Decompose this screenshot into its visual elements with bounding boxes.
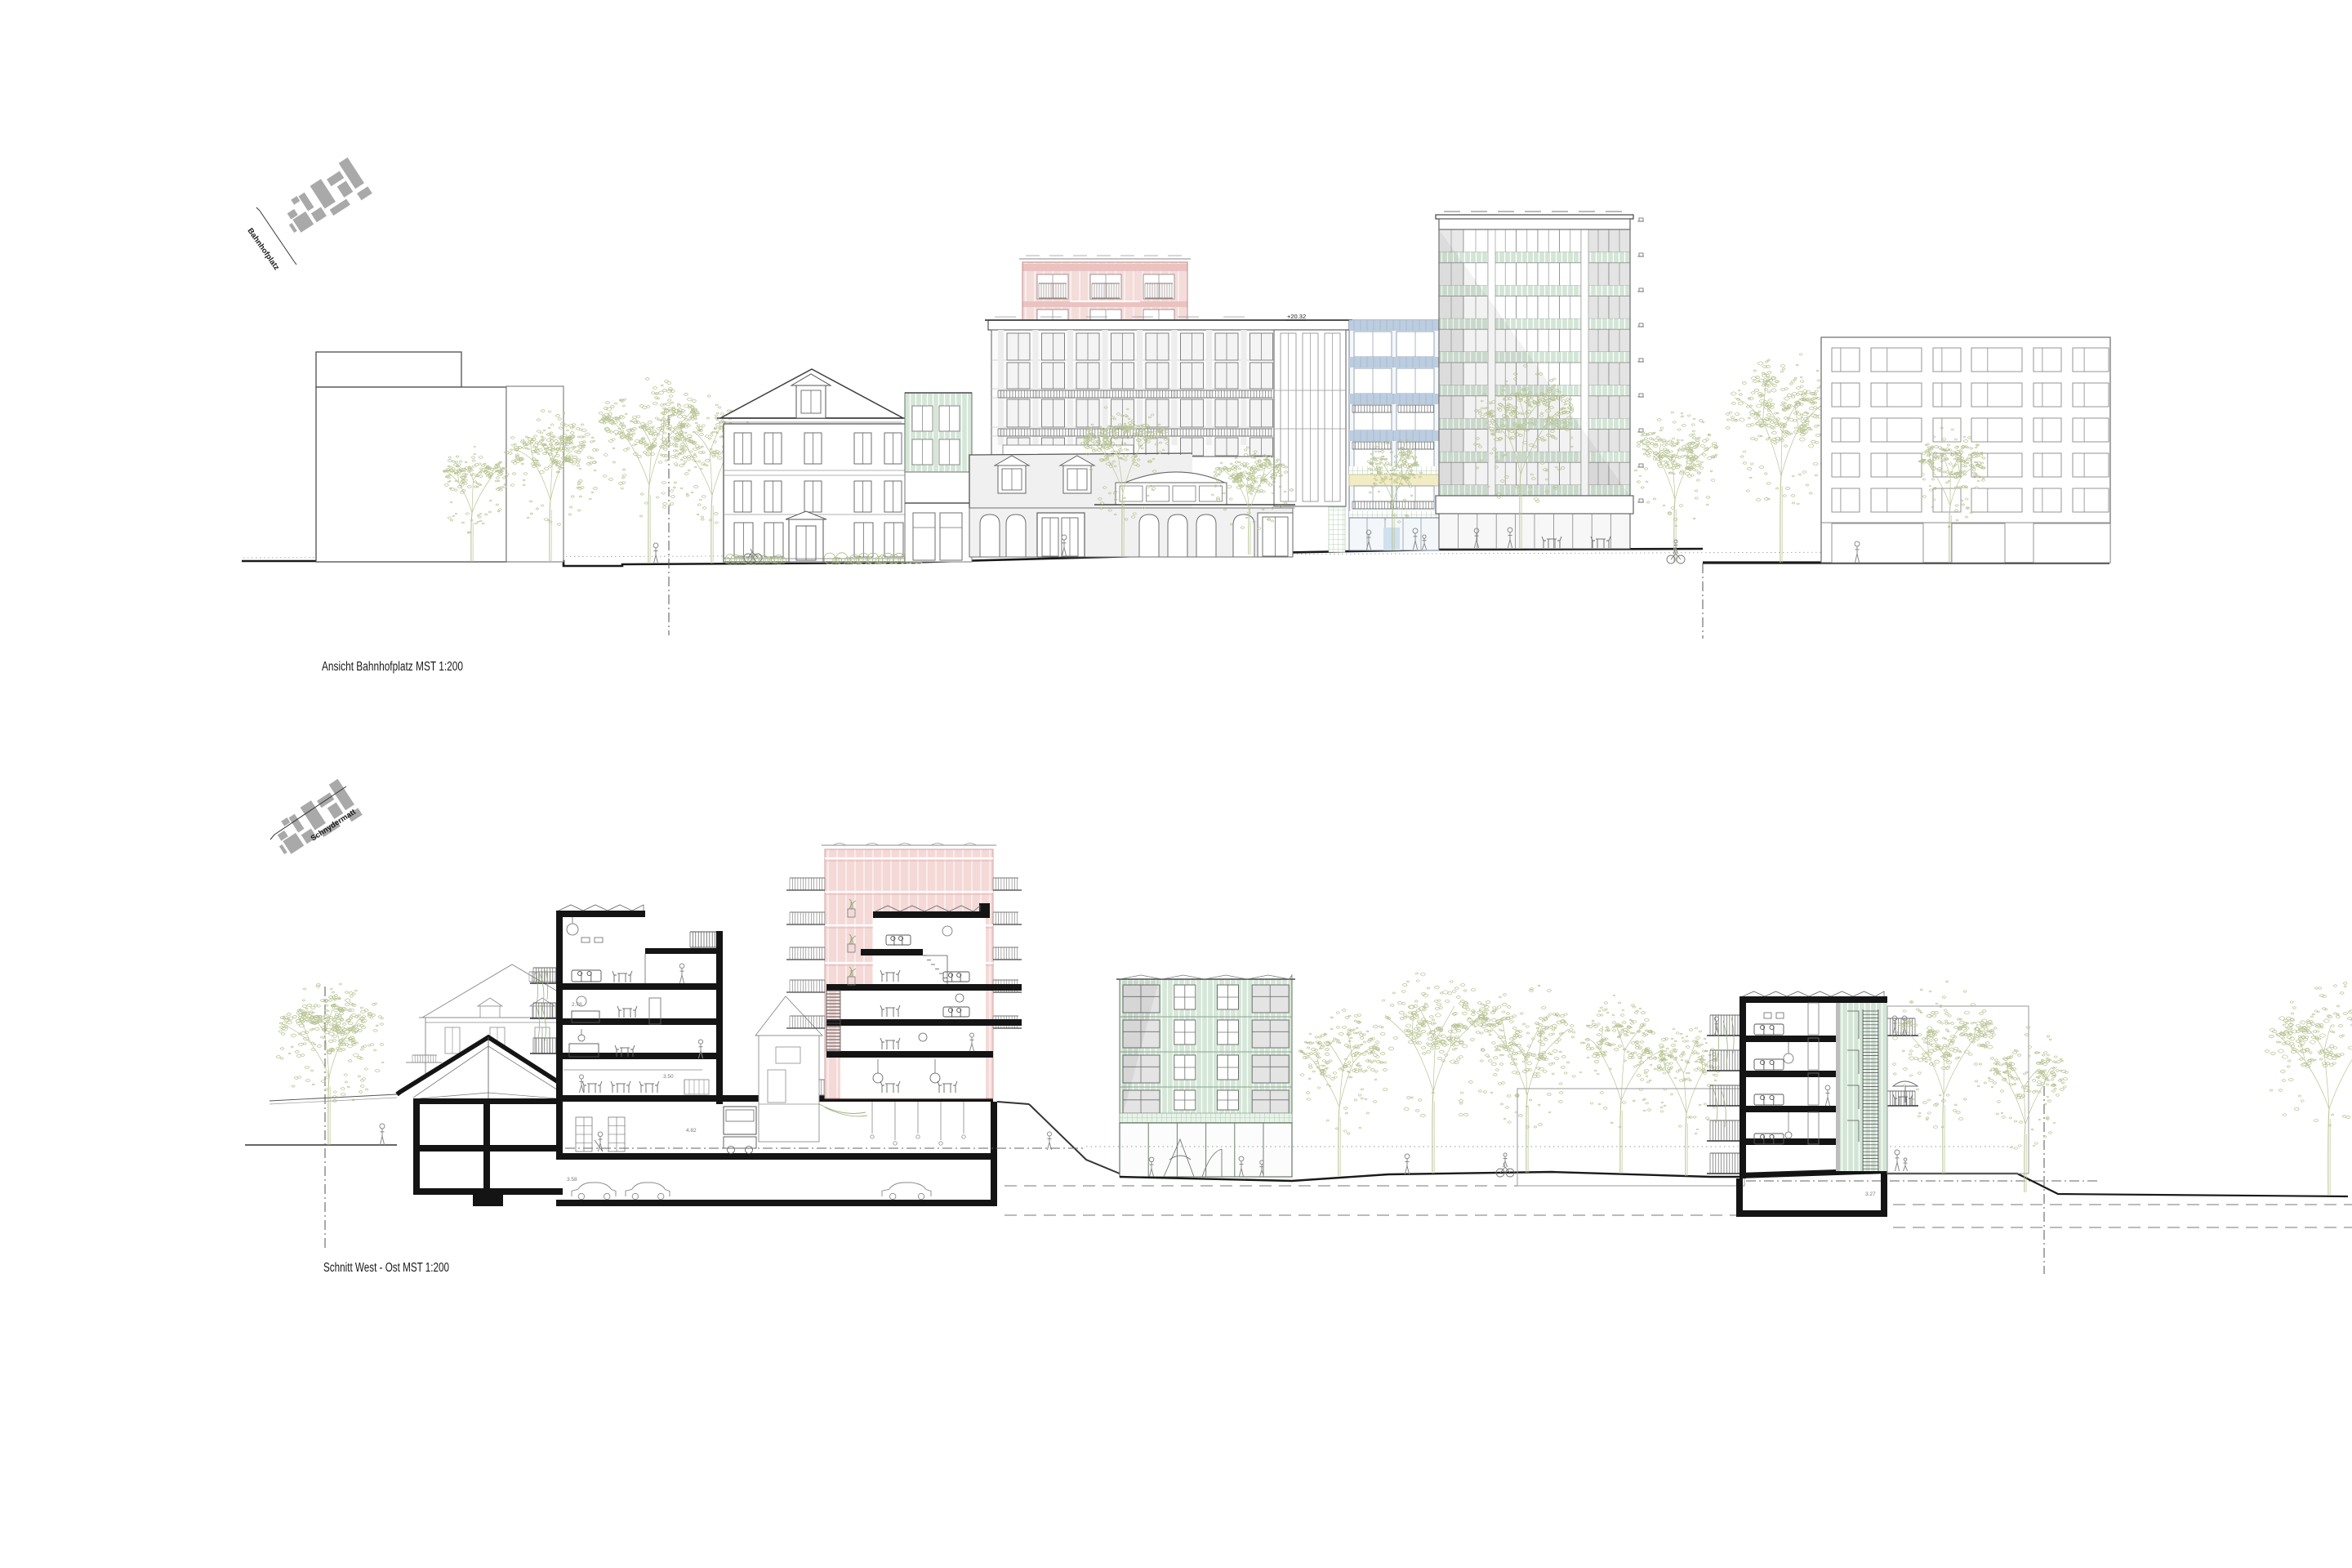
svg-text:Schnitt West - Ost MST 1:200: Schnitt West - Ost MST 1:200: [323, 1261, 449, 1275]
svg-text:Ansicht Bahnhofplatz MST 1:200: Ansicht Bahnhofplatz MST 1:200: [322, 660, 463, 674]
svg-text:3.50: 3.50: [663, 1074, 674, 1080]
svg-text:3.58: 3.58: [567, 1177, 577, 1183]
svg-text:2.78: 2.78: [572, 1002, 582, 1008]
svg-text:+20.32: +20.32: [1287, 313, 1306, 320]
svg-text:3.27: 3.27: [1865, 1192, 1876, 1197]
svg-text:4.82: 4.82: [686, 1128, 697, 1134]
